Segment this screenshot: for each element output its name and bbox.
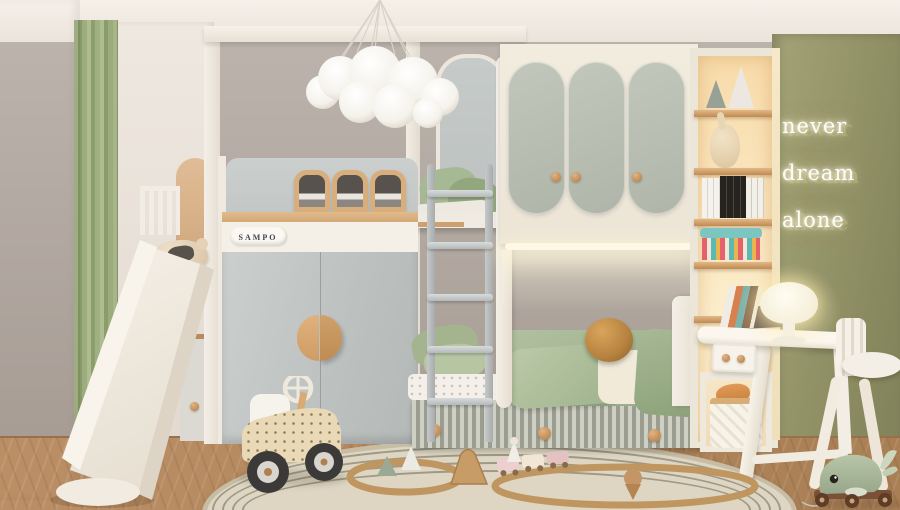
- desk-chair-seat: [842, 352, 900, 378]
- neon-line-never: never: [782, 114, 900, 138]
- handle-left-half: [297, 315, 319, 361]
- wardrobe-arch-window: [370, 170, 406, 212]
- kids-bedroom-scene: SAMPO: [0, 0, 900, 510]
- cabinet-door-knob: [632, 172, 642, 182]
- sampo-brand-label: SAMPO: [239, 233, 278, 242]
- desk-drawer-knob: [737, 355, 745, 363]
- handle-right-half: [320, 315, 342, 361]
- sampo-badge: SAMPO: [230, 227, 286, 245]
- books-black: [720, 176, 746, 218]
- shelf-board: [694, 110, 776, 117]
- books-white-left: [702, 178, 720, 218]
- neon-line-dream: dream: [782, 161, 900, 185]
- desk-drawer-knob: [722, 354, 730, 362]
- bookshelf-lit-edge: [772, 48, 780, 440]
- under-cabinet-light: [505, 243, 695, 250]
- tree-figurine-gray: [706, 80, 726, 108]
- wardrobe-round-handle: [297, 315, 343, 361]
- whale-pull-toy: [800, 442, 900, 510]
- slide: [40, 228, 230, 510]
- oval-cabinet-door: [628, 62, 685, 214]
- mushroom-lamp-cap: [760, 282, 818, 324]
- oval-cabinet-door: [508, 62, 565, 214]
- ladder-rung: [427, 242, 493, 249]
- ladder-rung: [427, 346, 493, 353]
- striped-box-lid: [700, 228, 762, 238]
- tree-figurine-white: [728, 66, 754, 108]
- ladder-rung: [427, 294, 493, 301]
- ladder-rung: [427, 190, 493, 197]
- wardrobe-wood-stripe: [222, 212, 418, 222]
- knot-pillow: [585, 318, 633, 362]
- desk-drawer: [711, 343, 756, 373]
- shelf-board: [694, 262, 776, 269]
- neon-sign: never never dream dream alone alone: [782, 114, 900, 254]
- shelf-board: [694, 219, 776, 226]
- cabinet-door-knob: [571, 172, 581, 182]
- books-white-right: [746, 178, 764, 218]
- ladder-rung: [427, 398, 493, 405]
- oval-cabinet-door: [568, 62, 625, 214]
- wooden-train-set: [335, 436, 775, 510]
- top-bunk-wood-trim: [416, 222, 464, 227]
- cabinet-door-knob: [551, 172, 561, 182]
- bunny-doll: [710, 124, 740, 168]
- wardrobe-arch-window: [332, 170, 368, 212]
- neon-line-alone: alone: [782, 208, 900, 232]
- shelf-board: [694, 168, 776, 175]
- headboard-glow: [502, 250, 698, 312]
- wardrobe-arch-window: [294, 170, 330, 212]
- balloon-chandelier: [295, 0, 465, 135]
- striped-box-body: [702, 238, 760, 260]
- mushroom-lamp-base: [772, 336, 806, 345]
